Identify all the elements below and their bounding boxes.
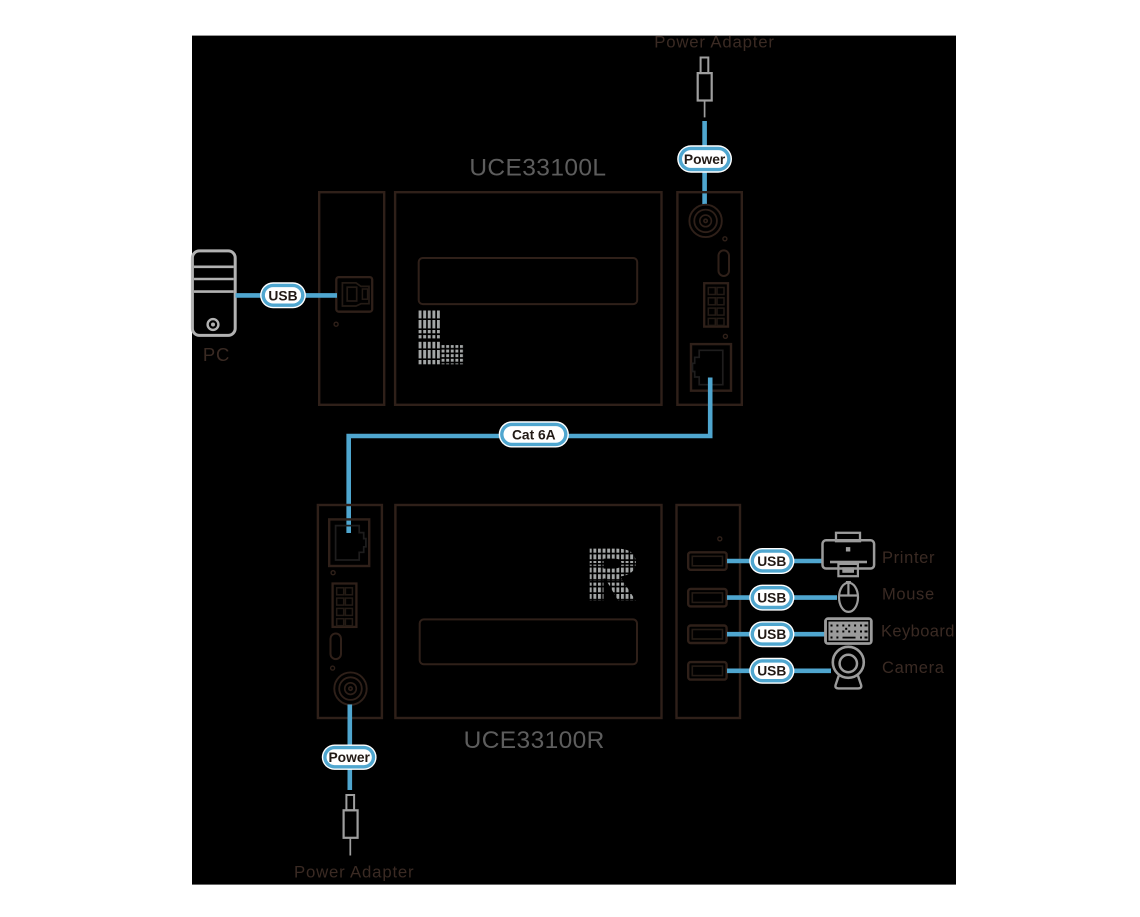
- svg-text:Power: Power: [328, 750, 370, 765]
- svg-text:Power Adapter: Power Adapter: [654, 33, 774, 52]
- svg-text:USB: USB: [757, 627, 786, 642]
- svg-text:USB: USB: [757, 591, 786, 606]
- svg-text:Camera: Camera: [882, 659, 945, 677]
- svg-text:Power: Power: [684, 152, 726, 167]
- svg-text:PC: PC: [203, 344, 230, 365]
- svg-text:Mouse: Mouse: [882, 586, 935, 604]
- svg-text:USB: USB: [757, 554, 786, 569]
- svg-text:USB: USB: [757, 664, 786, 679]
- svg-text:Power Adapter: Power Adapter: [294, 863, 414, 882]
- svg-text:Cat 6A: Cat 6A: [512, 427, 556, 442]
- svg-text:UCE33100R: UCE33100R: [464, 727, 605, 754]
- svg-text:UCE33100L: UCE33100L: [469, 155, 606, 182]
- svg-text:Printer: Printer: [882, 549, 935, 567]
- svg-text:Keyboard: Keyboard: [881, 622, 955, 640]
- svg-text:USB: USB: [268, 288, 297, 303]
